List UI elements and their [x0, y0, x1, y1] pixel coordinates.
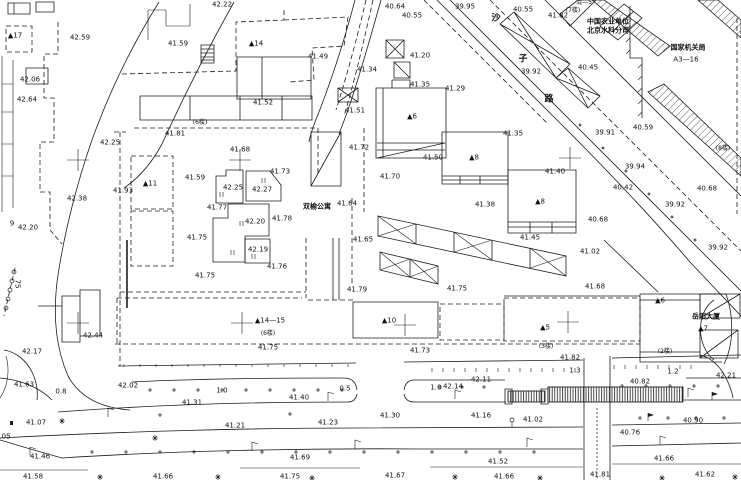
- elevation-label: 1.0: [216, 388, 227, 395]
- building-number-label: ▲8: [535, 199, 545, 206]
- place-name-label: 中国农业单位: [587, 19, 629, 26]
- road-name-label: 沙: [491, 15, 500, 24]
- place-name-label: 双榆公寓: [303, 204, 331, 211]
- building-number-label: ▲11: [143, 181, 157, 188]
- elevation-label: 41.68: [230, 147, 250, 154]
- elevation-label: 41.59: [168, 41, 188, 48]
- road-name-label: 路: [544, 96, 553, 105]
- elevation-label: 41.46: [30, 454, 50, 461]
- floor-count-label: 混—5: [576, 0, 592, 6]
- elevation-label: 41.35: [503, 131, 523, 138]
- elevation-label: 41.20: [410, 53, 430, 60]
- elevation-label: 41.66: [153, 474, 173, 480]
- floor-count-label: (6楼): [261, 331, 276, 337]
- place-name-label: 北京水科分司: [587, 28, 629, 35]
- elevation-label: 41.40: [289, 395, 309, 402]
- floor-count-label: (7楼): [566, 8, 581, 14]
- elevation-label: 41.51: [345, 108, 365, 115]
- elevation-label: 42.19: [248, 247, 268, 254]
- place-name-label: 岳阳大厦: [692, 314, 720, 321]
- elevation-label: 39.92: [521, 69, 541, 76]
- elevation-label: 41.66: [654, 456, 674, 463]
- elevation-label: 41.38: [475, 202, 495, 209]
- fence-label: 75: [14, 280, 21, 289]
- elevation-label: 41.52: [253, 100, 273, 107]
- elevation-label: 39.92: [708, 245, 728, 252]
- elevation-label: 41.02: [580, 249, 600, 256]
- elevation-label: 39.91: [595, 130, 615, 137]
- elevation-label: 42.22: [212, 2, 232, 9]
- elevation-label: 41.77: [207, 205, 227, 212]
- elevation-label: 41.75: [195, 273, 215, 280]
- elevation-label: 42.25: [100, 140, 120, 147]
- elevation-label: 1.2: [667, 369, 678, 376]
- elevation-label: 41.50: [423, 155, 443, 162]
- elevation-label: 41.63: [14, 382, 34, 389]
- elevation-label: 42.17: [22, 349, 42, 356]
- elevation-label: 42.14: [443, 384, 463, 391]
- elevation-label: 41.02: [523, 417, 543, 424]
- building-number-label: ▲5: [540, 325, 550, 332]
- elevation-label: A3—16: [673, 57, 698, 64]
- elevation-label: 41.82: [560, 355, 580, 362]
- elevation-label: 41.69: [290, 455, 310, 462]
- elevation-label: 41.49: [308, 54, 328, 61]
- floor-count-label: (8楼): [716, 146, 731, 152]
- elevation-label: 41.21: [225, 423, 245, 430]
- building-number-label: ▲10: [382, 318, 396, 325]
- elevation-label: 40.55: [402, 13, 422, 20]
- elevation-label: .05: [0, 434, 11, 441]
- building-number-label: ▲14: [249, 41, 263, 48]
- elevation-label: 41.23: [318, 420, 338, 427]
- elevation-label: 39.95: [455, 4, 475, 11]
- elevation-label: 42.59: [70, 35, 90, 42]
- elevation-label: 41.30: [380, 413, 400, 420]
- elevation-label: 41.45: [520, 235, 540, 242]
- elevation-label: 42.06: [20, 77, 40, 84]
- building-number-label: ▲6: [407, 114, 417, 121]
- elevation-label: 41.76: [267, 264, 287, 271]
- elevation-label: 9: [10, 221, 14, 228]
- elevation-label: 0.8: [55, 389, 66, 396]
- elevation-label: 42.02: [118, 383, 138, 390]
- elevation-label: 41.29: [445, 86, 465, 93]
- elevation-label: 42.21: [716, 373, 736, 380]
- elevation-label: 42.27: [252, 187, 272, 194]
- floor-count-label: (2楼): [658, 349, 673, 355]
- elevation-label: 42.64: [17, 97, 37, 104]
- elevation-label: 41.52: [488, 459, 508, 466]
- elevation-label: 41.34: [357, 67, 377, 74]
- elevation-label: 41.72: [349, 145, 369, 152]
- elevation-label: 41.31: [182, 400, 202, 407]
- elevation-label: 39.94: [625, 164, 645, 171]
- elevation-label: 41.67: [385, 473, 405, 480]
- elevation-label: 41.75: [280, 474, 300, 480]
- elevation-label: 40.68: [697, 186, 717, 193]
- elevation-label: 41.16: [471, 413, 491, 420]
- elevation-label: 40.64: [385, 4, 405, 11]
- elevation-label: 41.73: [410, 348, 430, 355]
- building-number-label: ▲8: [469, 155, 479, 162]
- elevation-label: 41.62: [695, 472, 715, 479]
- elevation-label: 41.58: [23, 474, 43, 480]
- elevation-label: 0.5: [339, 386, 350, 393]
- elevation-label: 41.59: [185, 175, 205, 182]
- road-name-label: 子: [518, 56, 527, 65]
- elevation-label: 42.44: [83, 333, 103, 340]
- elevation-label: 39.92: [665, 202, 685, 209]
- elevation-label: 40.45: [578, 65, 598, 72]
- elevation-label: 40.42: [613, 185, 633, 192]
- elevation-label: 42.11: [471, 377, 491, 384]
- floor-count-label: (6楼): [193, 120, 208, 126]
- elevation-label: 42.20: [18, 225, 38, 232]
- elevation-label: 41.64: [337, 201, 357, 208]
- elevation-label: 41.07: [26, 420, 46, 427]
- elevation-label: 40.82: [630, 379, 650, 386]
- elevation-label: 42.20: [245, 219, 265, 226]
- building-number-label: ▲6: [655, 298, 665, 305]
- label-layer: 42.2240.6439.9540.5540.5541.82▲1742.5941…: [0, 0, 741, 480]
- elevation-label: 41.68: [585, 284, 605, 291]
- elevation-label: 41.79: [347, 287, 367, 294]
- elevation-label: 41.93: [113, 188, 133, 195]
- elevation-label: 40.90: [683, 418, 703, 425]
- elevation-label: 40.68: [588, 217, 608, 224]
- building-number-label: ▲17: [8, 33, 22, 40]
- place-name-label: 国家机关局: [671, 45, 706, 52]
- building-number-label: ▲14—15: [255, 318, 285, 325]
- elevation-label: 41.35: [410, 82, 430, 89]
- building-number-label: ▲7: [698, 326, 708, 333]
- elevation-label: 41.66: [494, 474, 514, 480]
- elevation-label: 41.40: [545, 169, 565, 176]
- elevation-label: 41.65: [353, 237, 373, 244]
- elevation-label: 42.38: [67, 196, 87, 203]
- elevation-label: 41.75: [258, 345, 278, 352]
- elevation-label: 41.81: [165, 131, 185, 138]
- elevation-label: 41.75: [447, 286, 467, 293]
- elevation-label: 40.59: [633, 125, 653, 132]
- elevation-label: 40.55: [513, 7, 533, 14]
- survey-map: 42.2240.6439.9540.5540.5541.82▲1742.5941…: [0, 0, 741, 480]
- elevation-label: 42.25: [223, 185, 243, 192]
- elevation-label: 41.81: [590, 472, 610, 479]
- floor-count-label: (3楼): [539, 344, 554, 350]
- elevation-label: 41.73: [270, 169, 290, 176]
- elevation-label: 1.3: [569, 368, 580, 375]
- elevation-label: 40.76: [620, 430, 640, 437]
- elevation-label: 41.78: [272, 216, 292, 223]
- elevation-label: 1.0: [430, 385, 441, 392]
- elevation-label: 41.70: [380, 174, 400, 181]
- elevation-label: 41.75: [187, 235, 207, 242]
